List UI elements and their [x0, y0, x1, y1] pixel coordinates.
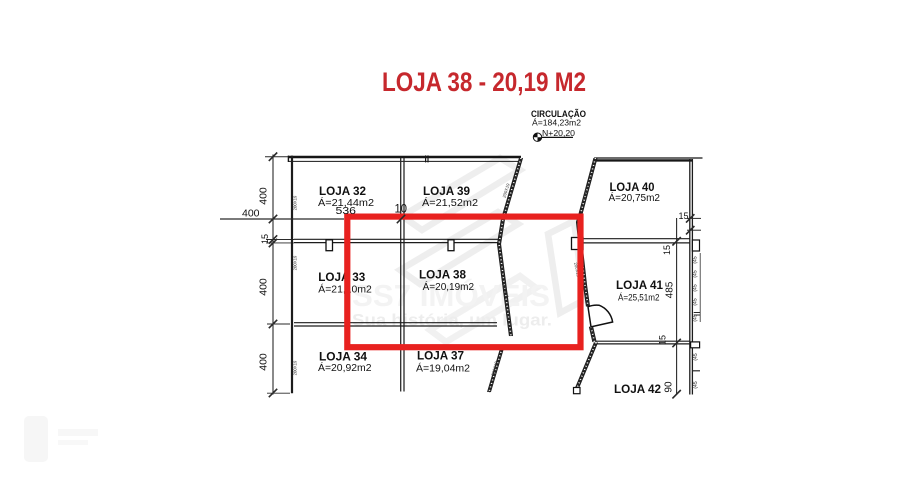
svg-text:Á=19,04m2: Á=19,04m2	[416, 362, 470, 375]
svg-text:(45: (45	[693, 284, 699, 291]
svg-text:(45: (45	[693, 256, 699, 263]
svg-text:LOJA 38: LOJA 38	[419, 268, 466, 282]
svg-text:90: 90	[664, 381, 675, 393]
svg-text:15: 15	[678, 211, 688, 221]
svg-text:400: 400	[258, 353, 270, 371]
svg-text:536: 536	[336, 206, 357, 217]
svg-text:15: 15	[260, 234, 270, 244]
svg-text:Á=21,52m2: Á=21,52m2	[422, 196, 478, 209]
svg-text:10: 10	[395, 203, 408, 215]
svg-text:Á=20,19m2: Á=20,19m2	[423, 280, 475, 293]
svg-text:(45: (45	[693, 270, 699, 277]
svg-text:Á=184,23m2: Á=184,23m2	[532, 118, 581, 128]
svg-text:400: 400	[258, 187, 270, 205]
svg-text:(45: (45	[693, 314, 699, 321]
svg-text:400: 400	[258, 278, 270, 296]
svg-text:485: 485	[665, 281, 676, 298]
svg-text:Á=20,92m2: Á=20,92m2	[318, 361, 372, 374]
svg-text:LOJA 41: LOJA 41	[616, 280, 664, 292]
svg-text:15: 15	[658, 335, 668, 345]
svg-text:Sua história, um lugar.: Sua história, um lugar.	[352, 311, 552, 330]
svg-text:15: 15	[662, 245, 672, 255]
svg-text:400: 400	[242, 208, 260, 220]
svg-text:N+20,20: N+20,20	[542, 128, 575, 138]
svg-text:LOJA 37: LOJA 37	[417, 349, 464, 363]
svg-text:(45: (45	[693, 298, 699, 305]
svg-text:200X19: 200X19	[293, 255, 298, 270]
svg-text:(45: (45	[693, 353, 699, 360]
svg-text:200X19: 200X19	[293, 195, 298, 210]
svg-text:LOJA 38 - 20,19 M2: LOJA 38 - 20,19 M2	[382, 67, 586, 97]
svg-text:200X19: 200X19	[293, 360, 298, 375]
svg-text:Á=20,75m2: Á=20,75m2	[609, 191, 661, 204]
svg-text:(45: (45	[693, 381, 699, 388]
svg-text:LOJA 33: LOJA 33	[318, 270, 365, 284]
svg-text:Á=25,51m2: Á=25,51m2	[618, 293, 660, 304]
svg-text:LOJA 42: LOJA 42	[614, 382, 661, 396]
